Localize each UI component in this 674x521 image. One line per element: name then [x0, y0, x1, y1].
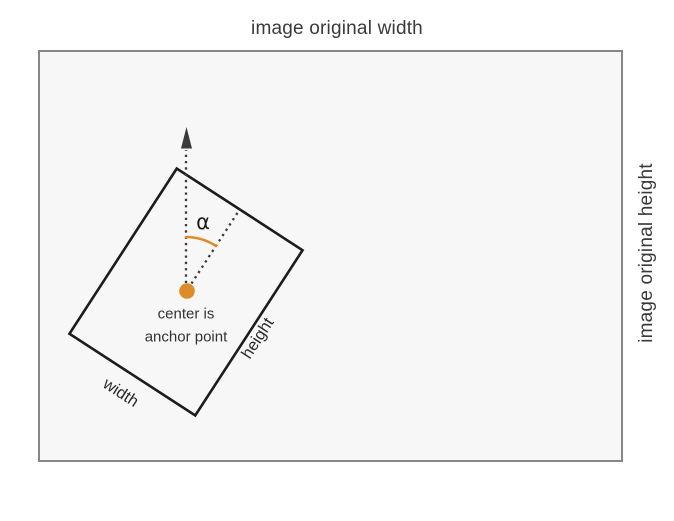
label-center-caption-line2: anchor point [145, 329, 228, 346]
angle-arc [186, 237, 216, 246]
arrow-up-icon [181, 127, 192, 149]
rotation-diagram: image original width image original heig… [0, 0, 674, 521]
label-alpha: α [196, 210, 210, 234]
anchor-point-dot [179, 283, 195, 299]
diagram-overlay: α center is anchor point width height [0, 0, 674, 521]
label-center-caption-line1: center is [158, 306, 215, 323]
label-rect-width: width [99, 374, 142, 411]
